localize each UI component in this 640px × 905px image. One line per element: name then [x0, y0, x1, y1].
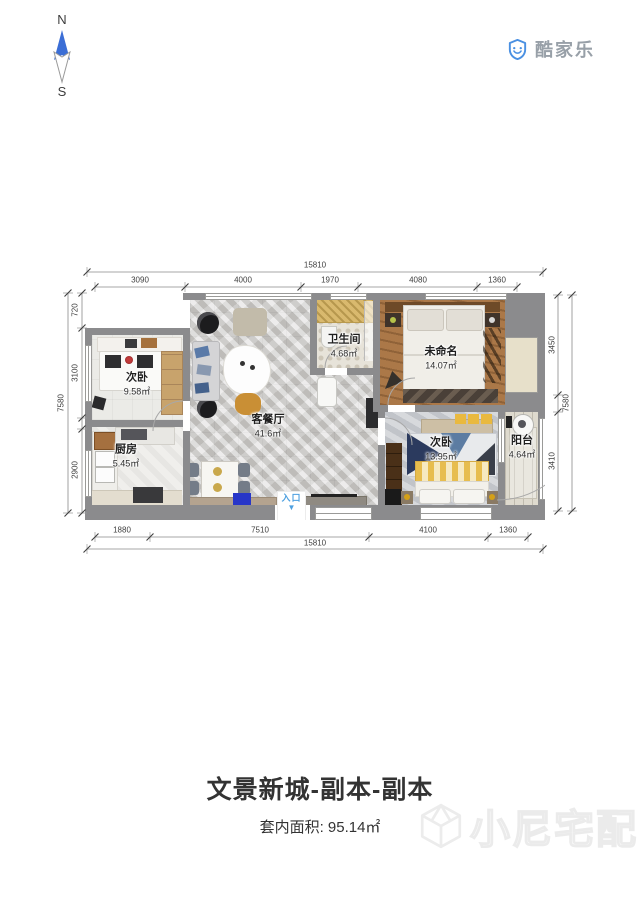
sofa-pillow [196, 364, 211, 376]
pillow [137, 355, 153, 368]
bay-window [505, 337, 538, 393]
stool [455, 414, 466, 424]
range-hood [121, 429, 147, 440]
dim-bottom-total: 15810 [303, 539, 327, 548]
room-label-living-dining: 客餐厅 41.6㎡ [252, 411, 285, 440]
brand-name: 酷家乐 [535, 36, 595, 62]
room-area: 41.6㎡ [252, 427, 285, 440]
dim-top-seg: 4080 [408, 276, 428, 285]
inner-area-text: 套内面积: 95.14㎡ [0, 816, 640, 837]
pillow [446, 309, 483, 331]
room-area: 13.95㎡ [425, 450, 457, 463]
door-opening [378, 418, 385, 445]
lamp [489, 494, 495, 500]
window [85, 450, 92, 497]
dim-right-seg: 3410 [548, 451, 557, 471]
pillow [407, 309, 444, 331]
balcony-item [506, 416, 512, 428]
pillow [453, 489, 485, 504]
wall [378, 445, 385, 505]
stove [133, 487, 163, 503]
washstand [317, 377, 337, 407]
door-opening [183, 401, 190, 431]
dim-left-seg: 2900 [71, 460, 80, 480]
dim-bottom-seg: 7510 [250, 526, 270, 535]
room-name: 客餐厅 [252, 411, 285, 427]
room-label-bedroom-second: 次卧 13.95㎡ [425, 434, 457, 463]
wall [373, 293, 380, 412]
compass: N S [50, 12, 74, 100]
armchair [197, 312, 219, 334]
plan-title: 文景新城-副本-副本 [0, 770, 640, 806]
door-opening [388, 405, 415, 412]
entry-label: 入口 [278, 494, 305, 503]
entry-arrow-icon: ▼ [278, 504, 305, 512]
kujiale-shield-smile-icon [506, 38, 529, 61]
entry-marker: 入口 ▼ [278, 492, 305, 520]
dim-top-seg: 3090 [130, 276, 150, 285]
table-decor [240, 361, 245, 366]
dim-left-seg: 720 [71, 302, 80, 317]
room-name: 次卧 [124, 369, 151, 385]
pillow [105, 355, 121, 368]
window [85, 345, 92, 402]
wall [183, 328, 190, 401]
room-name: 阳台 [509, 432, 536, 448]
window [539, 418, 545, 500]
dim-top-seg: 4000 [233, 276, 253, 285]
lamp [404, 494, 410, 500]
room-name: 卫生间 [328, 331, 361, 347]
stool [468, 414, 479, 424]
kujiale-logo: 酷家乐 [506, 36, 595, 62]
window [425, 293, 507, 300]
room-label-bedroom-topleft: 次卧 9.58㎡ [124, 369, 151, 398]
room-label-balcony: 阳台 4.64㎡ [509, 432, 536, 461]
window [315, 507, 372, 520]
room-label-kitchen: 厨房 5.45㎡ [113, 441, 140, 470]
washing-machine-door [518, 420, 526, 428]
rug [233, 308, 267, 336]
wall [183, 431, 190, 505]
floor-plan: 次卧 9.58㎡ 厨房 5.45㎡ 客餐厅 41.6㎡ 卫生间 4.68㎡ 未命… [85, 293, 545, 520]
shelf-item [141, 338, 157, 348]
shelf-item [125, 339, 137, 348]
wall [505, 393, 538, 412]
room-label-master-bedroom: 未命名 14.07㎡ [425, 343, 458, 372]
stool [481, 414, 492, 424]
dim-left-seg: 3100 [71, 363, 80, 383]
rug [403, 389, 498, 403]
window [205, 293, 312, 300]
room-area: 5.45㎡ [113, 457, 140, 470]
room-name: 未命名 [425, 343, 458, 359]
dining-chair [238, 463, 250, 477]
dim-top-total: 15810 [303, 261, 327, 270]
wardrobe [161, 351, 183, 415]
shower-glass [364, 301, 373, 361]
table-decor [250, 365, 255, 370]
dim-top-seg: 1360 [487, 276, 507, 285]
dim-bottom-seg: 1360 [498, 526, 518, 535]
plate [213, 483, 222, 492]
door-opening [325, 368, 347, 375]
compass-needle-icon [50, 28, 74, 84]
wall [498, 461, 505, 505]
wall [373, 405, 388, 412]
compass-south-label: S [50, 84, 74, 99]
room-area: 9.58㎡ [124, 385, 151, 398]
room-area: 4.68㎡ [328, 347, 361, 360]
room-name: 次卧 [425, 434, 457, 450]
window [420, 507, 492, 520]
dim-bottom-seg: 1880 [112, 526, 132, 535]
lamp [489, 317, 495, 323]
floor-decor [483, 328, 501, 383]
wall [505, 293, 538, 337]
wall [310, 368, 325, 375]
room-area: 4.64㎡ [509, 448, 536, 461]
lamp [390, 317, 396, 323]
dim-left-total: 7580 [57, 393, 66, 413]
room-label-bathroom: 卫生间 4.68㎡ [328, 331, 361, 360]
dim-right-seg: 3450 [548, 335, 557, 355]
dim-top-seg: 1970 [320, 276, 340, 285]
sliding-door [498, 418, 505, 463]
room-area: 14.07㎡ [425, 359, 458, 372]
armchair [197, 398, 217, 418]
wall [85, 328, 190, 335]
dim-bottom-seg: 4100 [418, 526, 438, 535]
wall [92, 420, 183, 427]
wall [310, 300, 317, 368]
shelf [97, 337, 182, 352]
dim-right-total: 7580 [562, 393, 571, 413]
coffee-table [223, 345, 271, 395]
window [330, 293, 367, 300]
compass-north-label: N [50, 12, 74, 27]
sofa-pillow [195, 382, 210, 393]
flower-decor [125, 356, 133, 364]
plate [213, 467, 222, 476]
room-name: 厨房 [113, 441, 140, 457]
pillow [419, 489, 451, 504]
tv [311, 494, 357, 497]
